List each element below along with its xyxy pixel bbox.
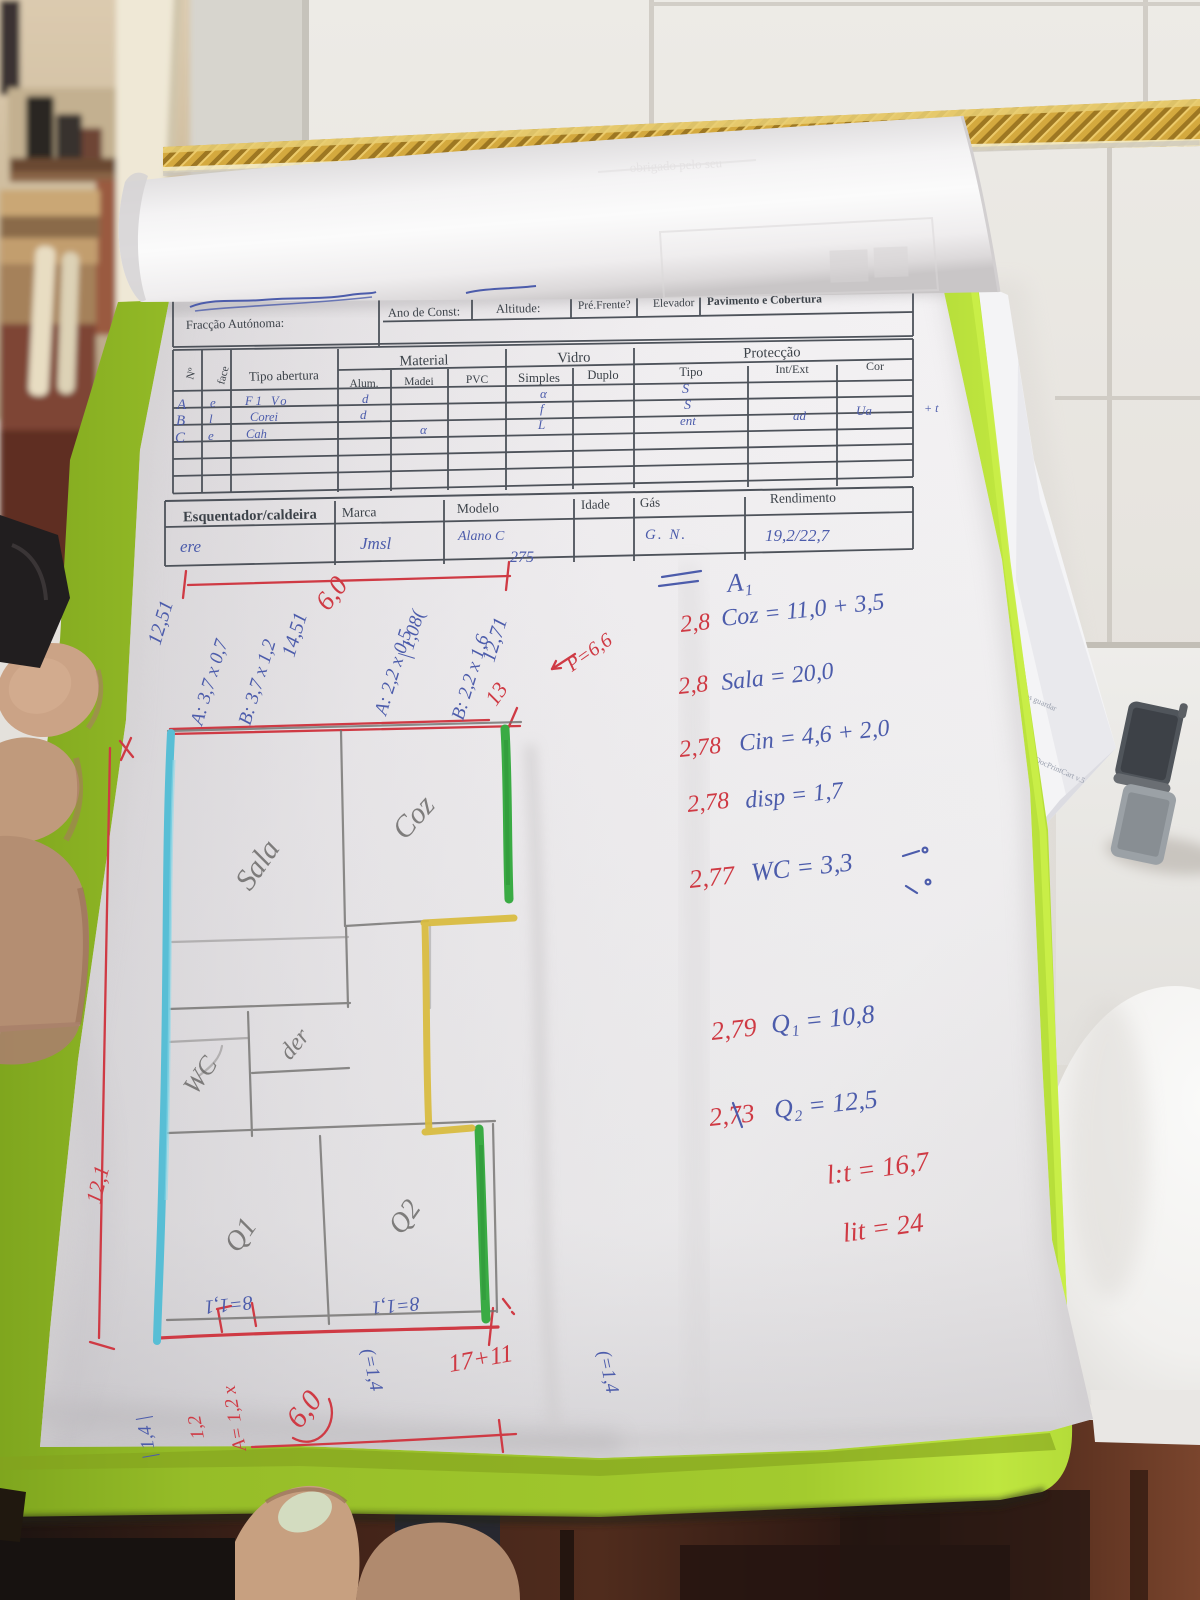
svg-text:2,8: 2,8 <box>677 671 710 700</box>
svg-text:Altitude:: Altitude: <box>496 301 541 316</box>
svg-text:Pré.Frente?: Pré.Frente? <box>578 299 631 312</box>
svg-text:Ano de Const:: Ano de Const: <box>388 304 461 320</box>
svg-text:Duplo: Duplo <box>587 368 618 382</box>
svg-text:Simples: Simples <box>518 370 560 385</box>
svg-text:PVC: PVC <box>466 374 489 386</box>
svg-text:19,2/22,7: 19,2/22,7 <box>765 526 831 545</box>
svg-text:2,73: 2,73 <box>708 1098 756 1132</box>
svg-text:Cah: Cah <box>246 427 267 441</box>
svg-text:+ t: + t <box>924 401 939 415</box>
svg-text:A: A <box>176 397 187 413</box>
svg-text:Corei: Corei <box>250 410 279 424</box>
svg-text:α: α <box>540 386 548 401</box>
svg-text:Modelo: Modelo <box>457 500 500 516</box>
svg-text:Alum.: Alum. <box>349 378 378 390</box>
svg-text:ere: ere <box>180 537 202 556</box>
svg-text:Int/Ext: Int/Ext <box>775 362 809 376</box>
svg-text:Idade: Idade <box>581 496 610 512</box>
svg-text:Jmsl: Jmsl <box>360 534 391 553</box>
svg-text:Alano C: Alano C <box>457 529 505 544</box>
svg-text:Elevador: Elevador <box>653 297 695 310</box>
svg-text:S: S <box>682 382 689 397</box>
svg-text:ent: ent <box>680 413 696 428</box>
svg-text:e: e <box>210 395 216 410</box>
svg-text:Material: Material <box>399 352 448 369</box>
svg-text:F1 Vo: F1 Vo <box>244 394 290 408</box>
svg-text:B: B <box>176 413 185 429</box>
svg-text:Gás: Gás <box>640 495 661 510</box>
svg-text:Cor: Cor <box>866 359 884 373</box>
svg-text:2,78: 2,78 <box>686 788 730 818</box>
svg-text:1,2: 1,2 <box>184 1413 209 1441</box>
svg-text:2,79: 2,79 <box>710 1012 758 1046</box>
svg-text:L: L <box>537 417 545 432</box>
svg-text:Vidro: Vidro <box>557 350 590 367</box>
svg-text:Tipo: Tipo <box>679 365 702 379</box>
svg-text:Tipo abertura: Tipo abertura <box>249 367 319 384</box>
svg-text:Madei: Madei <box>404 376 433 388</box>
svg-text:A₁: A₁ <box>724 567 754 599</box>
svg-text:d: d <box>360 407 367 422</box>
svg-text:2,77: 2,77 <box>688 860 737 894</box>
svg-text:2,8: 2,8 <box>679 609 712 638</box>
svg-text:Rendimento: Rendimento <box>770 490 837 506</box>
svg-text:G. N.: G. N. <box>645 527 687 543</box>
svg-text:ad: ad <box>793 408 807 423</box>
svg-text:Marca: Marca <box>342 504 377 520</box>
svg-text:C: C <box>175 430 186 446</box>
svg-text:Ua: Ua <box>856 403 872 418</box>
svg-text:Esquentador/caldeira: Esquentador/caldeira <box>183 507 318 526</box>
svg-text:l: l <box>209 411 213 426</box>
svg-text:d: d <box>362 391 369 406</box>
svg-text:Protecção: Protecção <box>743 344 801 361</box>
svg-text:S: S <box>684 398 691 413</box>
svg-text:2,78: 2,78 <box>678 733 722 763</box>
svg-text:Fracção Autónoma:: Fracção Autónoma: <box>186 316 285 332</box>
svg-text:α: α <box>420 422 428 437</box>
svg-text:e: e <box>208 428 214 443</box>
svg-text:275: 275 <box>510 549 534 566</box>
